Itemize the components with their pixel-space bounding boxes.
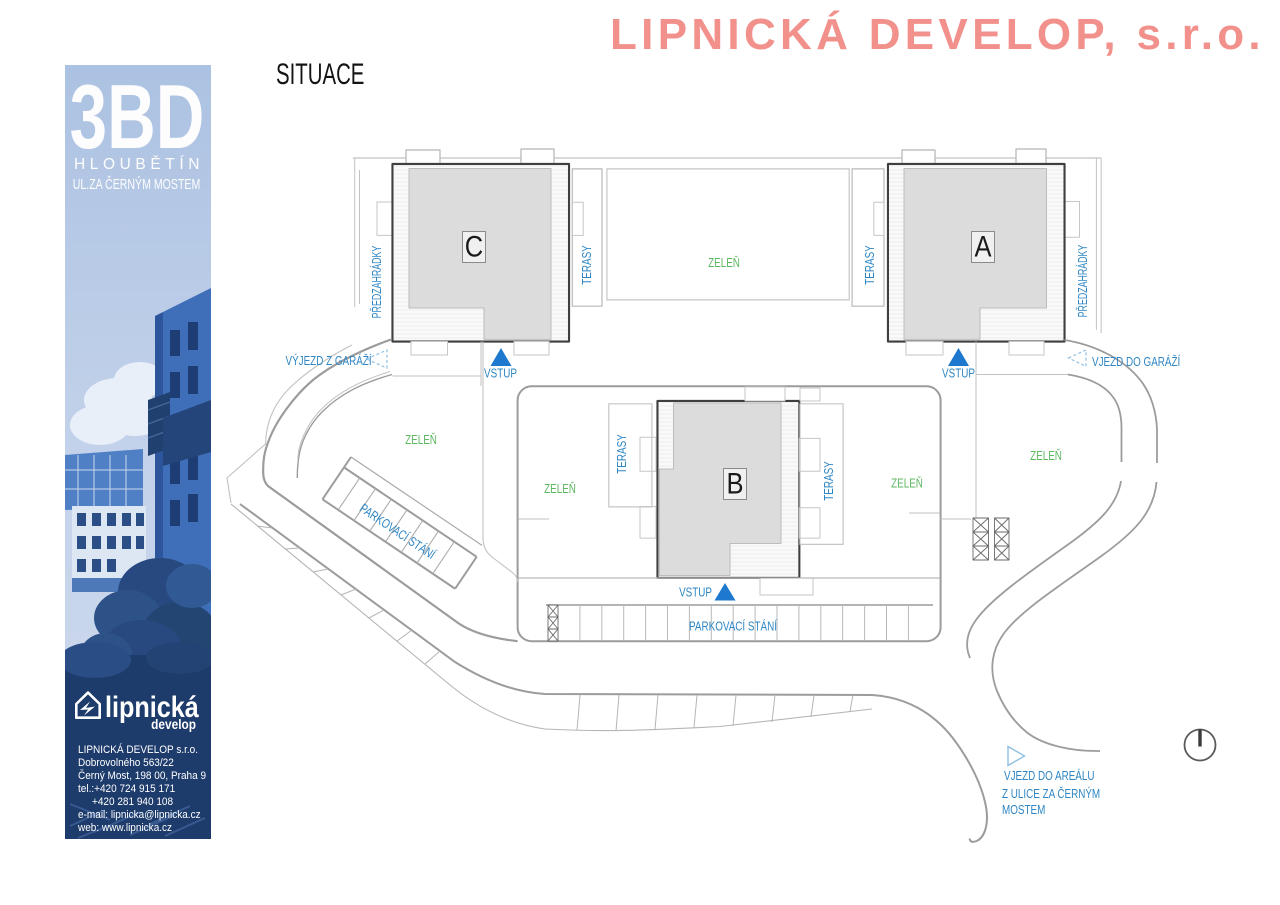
svg-text:ZELEŇ: ZELEŇ — [891, 476, 923, 491]
svg-text:TERASY: TERASY — [616, 434, 630, 474]
svg-text:+420 281 940 108: +420 281 940 108 — [92, 795, 173, 808]
svg-text:TERASY: TERASY — [823, 461, 837, 501]
svg-text:e-mail: lipnicka@lipnicka.cz: e-mail: lipnicka@lipnicka.cz — [78, 808, 201, 821]
svg-text:Z ULICE ZA ČERNÝM: Z ULICE ZA ČERNÝM — [1002, 787, 1100, 802]
svg-text:LIPNICKÁ DEVELOP s.r.o.: LIPNICKÁ DEVELOP s.r.o. — [78, 742, 198, 756]
svg-text:ZELEŇ: ZELEŇ — [544, 482, 576, 497]
svg-text:TERASY: TERASY — [864, 245, 878, 285]
svg-text:Dobrovolného 563/22: Dobrovolného 563/22 — [78, 756, 174, 769]
svg-text:VJEZD DO GARÁŽÍ: VJEZD DO GARÁŽÍ — [1092, 355, 1181, 370]
svg-text:VÝJEZD Z GARÁŽÍ: VÝJEZD Z GARÁŽÍ — [286, 354, 373, 369]
svg-text:ZELEŇ: ZELEŇ — [1030, 449, 1062, 464]
svg-text:VSTUP: VSTUP — [484, 367, 517, 381]
svg-text:MOSTEM: MOSTEM — [1002, 804, 1045, 818]
svg-text:UL.ZA ČERNÝM MOSTEM: UL.ZA ČERNÝM MOSTEM — [73, 175, 201, 192]
svg-text:develop: develop — [151, 716, 196, 732]
svg-text:ZELEŇ: ZELEŇ — [405, 433, 437, 448]
svg-text:3BD: 3BD — [70, 66, 205, 167]
svg-text:VSTUP: VSTUP — [942, 367, 975, 381]
svg-text:PARKOVACÍ STÁNÍ: PARKOVACÍ STÁNÍ — [689, 619, 778, 634]
svg-text:ZELEŇ: ZELEŇ — [708, 256, 740, 271]
svg-text:C: C — [465, 230, 483, 263]
svg-text:VJEZD DO AREÁLU: VJEZD DO AREÁLU — [1004, 769, 1094, 784]
svg-text:VSTUP: VSTUP — [679, 586, 712, 600]
svg-text:B: B — [726, 467, 743, 500]
svg-text:TERASY: TERASY — [581, 245, 595, 285]
svg-text:HLOUBĚTÍN: HLOUBĚTÍN — [74, 156, 204, 173]
svg-text:PŘEDZAHRÁDKY: PŘEDZAHRÁDKY — [369, 245, 384, 318]
svg-text:web: www.lipnicka.cz: web: www.lipnicka.cz — [77, 821, 172, 834]
svg-text:PARKOVACÍ STÁNÍ: PARKOVACÍ STÁNÍ — [357, 501, 439, 563]
svg-text:A: A — [974, 230, 991, 263]
svg-text:Černý Most, 198 00, Praha 9: Černý Most, 198 00, Praha 9 — [78, 768, 206, 782]
svg-text:tel.:+420 724 915 171: tel.:+420 724 915 171 — [78, 782, 175, 795]
svg-text:PŘEDZAHRÁDKY: PŘEDZAHRÁDKY — [1075, 244, 1090, 317]
